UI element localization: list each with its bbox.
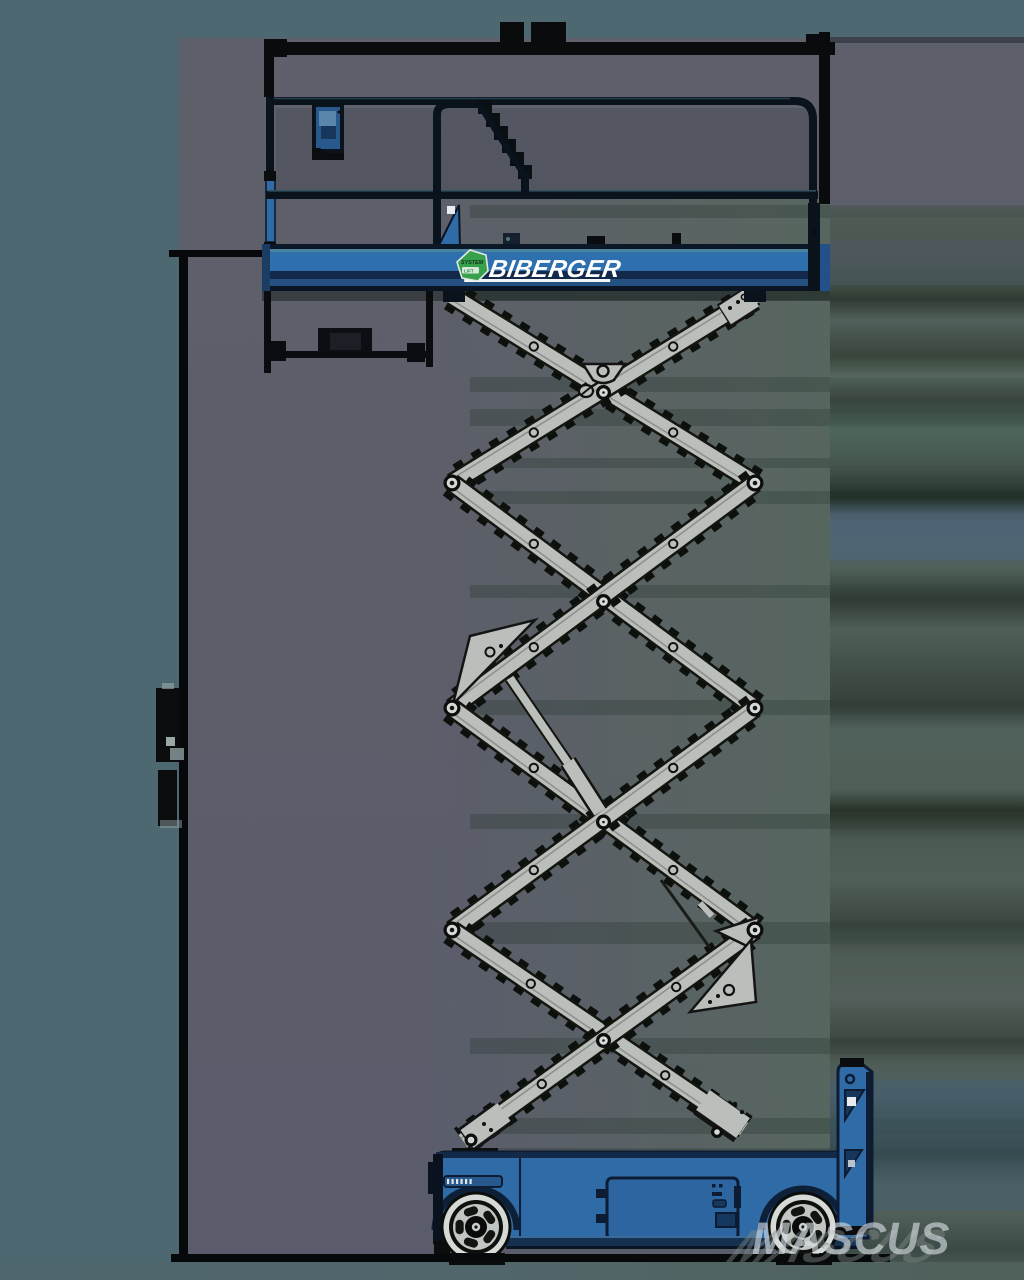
svg-text:LIFT: LIFT: [464, 269, 474, 274]
svg-text:SYSTEM: SYSTEM: [461, 260, 484, 266]
svg-text:MASCUS: MASCUS: [752, 1213, 950, 1264]
svg-text:BIBERGER: BIBERGER: [487, 256, 623, 283]
